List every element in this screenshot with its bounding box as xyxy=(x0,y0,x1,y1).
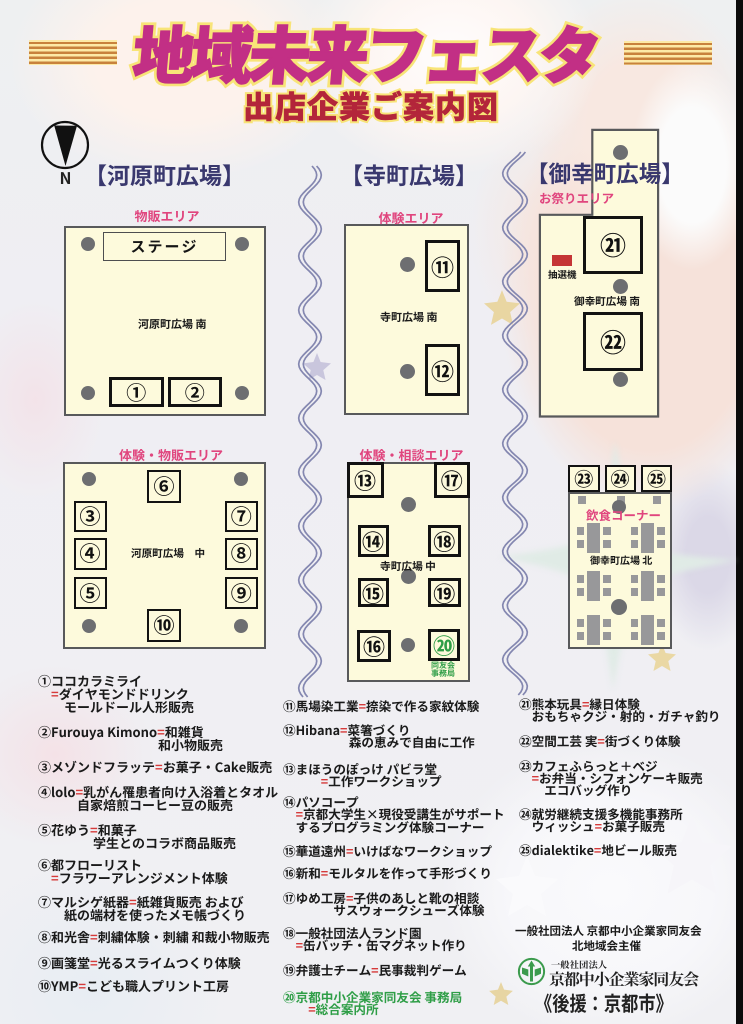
svg-text:N: N xyxy=(60,165,72,189)
